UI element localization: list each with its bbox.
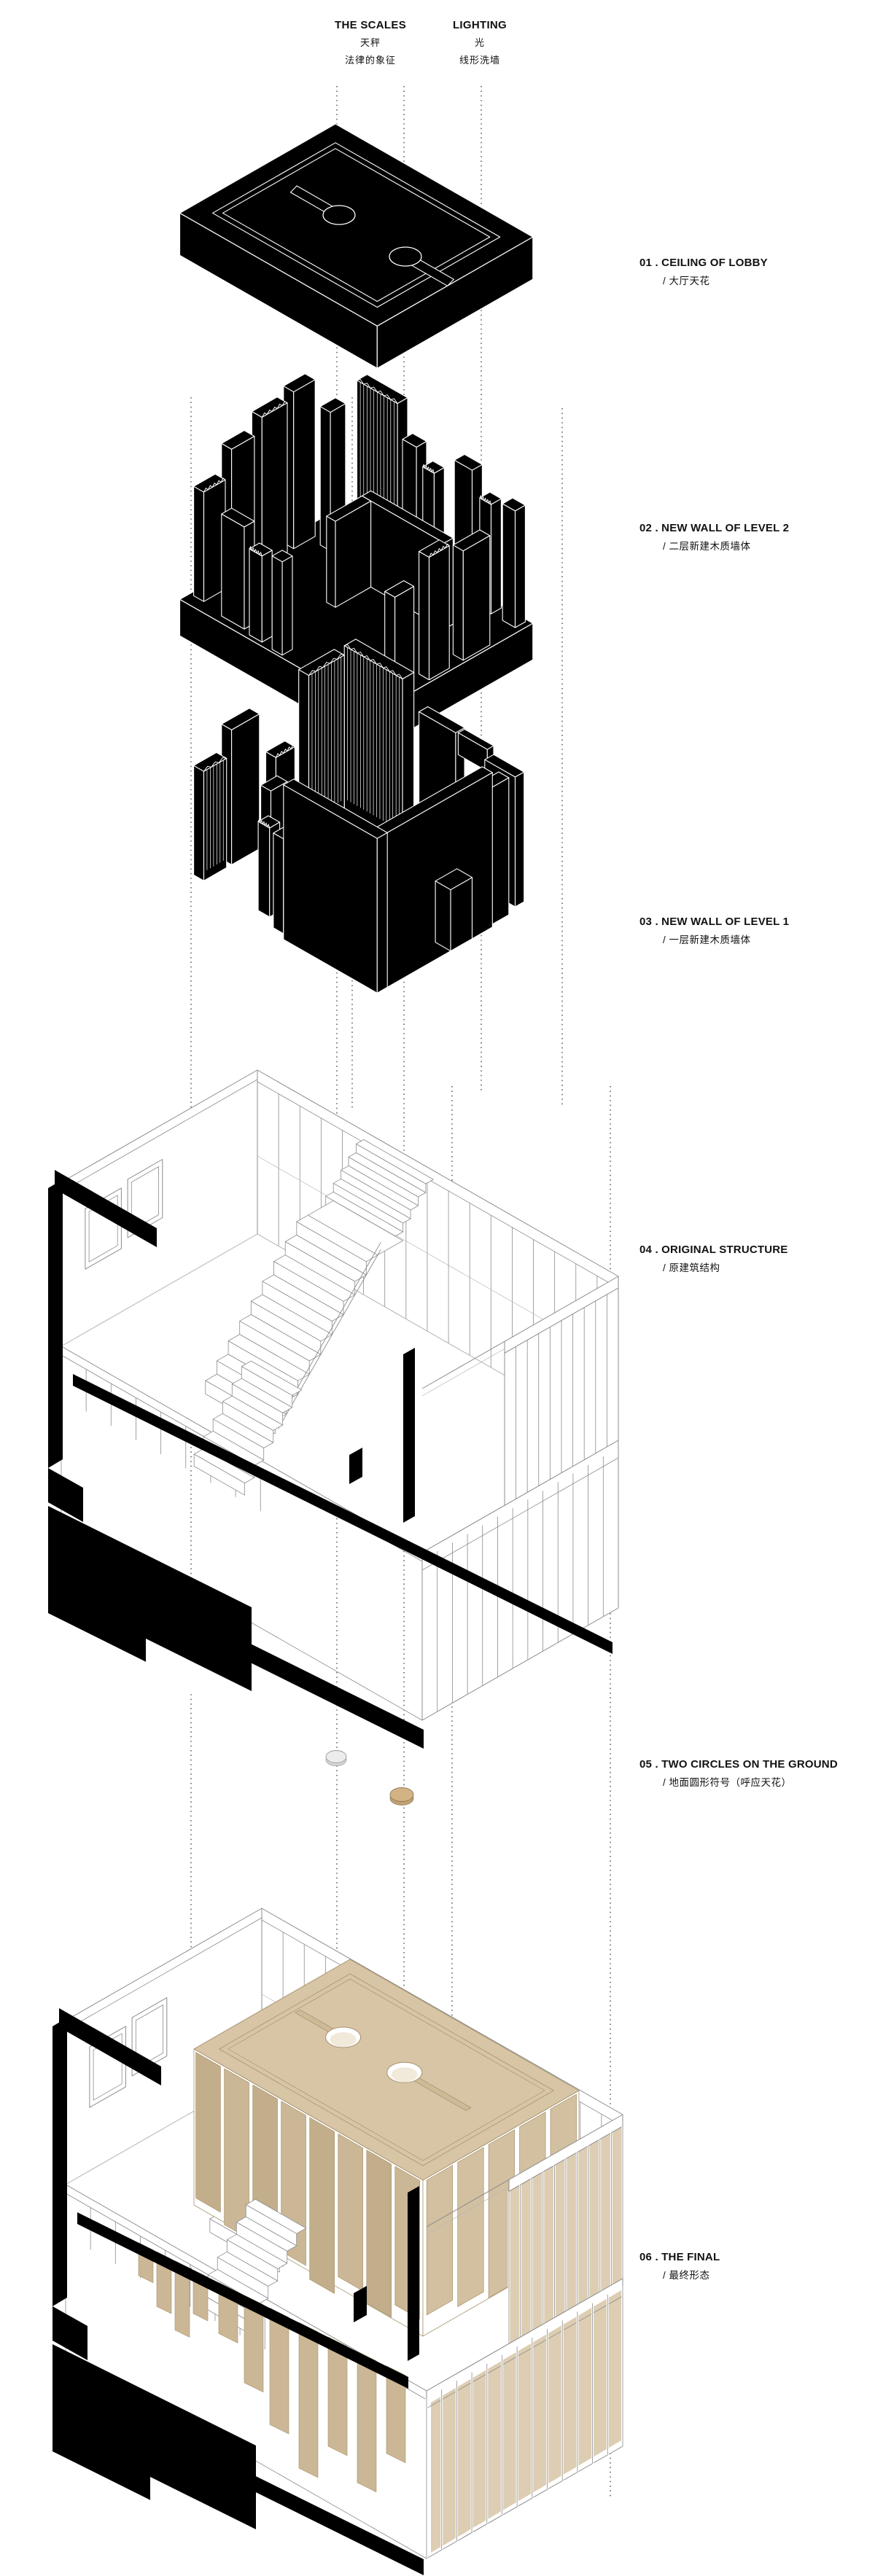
annotation-title: 03 . NEW WALL OF LEVEL 1 (639, 916, 789, 928)
annotation-06-the-final: 06 . THE FINAL / 最终形态 (639, 2251, 720, 2282)
scale-pan-left-icon (323, 206, 355, 225)
ceiling-of-lobby (180, 124, 533, 368)
cut-left-wall (52, 2018, 67, 2306)
annotation-subtitle: / 二层新建木质墙体 (639, 538, 789, 553)
scale-pan-right-icon (389, 247, 421, 266)
cut-left-wall (48, 1179, 63, 1468)
annotation-title: 06 . THE FINAL (639, 2251, 720, 2263)
annotation-subtitle: / 原建筑结构 (639, 1260, 788, 1274)
column-subtitle-2: 线形洗墙 (400, 52, 560, 66)
annotation-title: 04 . ORIGINAL STRUCTURE (639, 1244, 788, 1256)
annotation-05-two-circles-ground: 05 . TWO CIRCLES ON THE GROUND / 地面圆形符号（… (639, 1758, 838, 1789)
original-structure (48, 1070, 618, 1749)
annotation-subtitle: / 最终形态 (639, 2267, 720, 2282)
column-title: LIGHTING (400, 19, 560, 31)
annotation-subtitle: / 一层新建木质墙体 (639, 932, 789, 946)
annotation-01-ceiling-of-lobby: 01 . CEILING OF LOBBY / 大厅天花 (639, 257, 768, 287)
ground-circle-white (326, 1751, 346, 1763)
diagram-canvas (0, 0, 875, 2576)
annotation-title: 05 . TWO CIRCLES ON THE GROUND (639, 1758, 838, 1771)
annotation-subtitle: / 大厅天花 (639, 273, 768, 287)
two-circles-on-ground (326, 1751, 413, 1806)
annotation-04-original-structure: 04 . ORIGINAL STRUCTURE / 原建筑结构 (639, 1244, 788, 1274)
annotation-03-new-wall-level-1: 03 . NEW WALL OF LEVEL 1 / 一层新建木质墙体 (639, 916, 789, 946)
column-label-lighting: LIGHTING 光 线形洗墙 (400, 19, 560, 66)
annotation-title: 01 . CEILING OF LOBBY (639, 257, 768, 269)
ground-circle-tan (390, 1788, 413, 1802)
annotation-subtitle: / 地面圆形符号（呼应天花） (639, 1774, 838, 1789)
annotation-02-new-wall-level-2: 02 . NEW WALL OF LEVEL 2 / 二层新建木质墙体 (639, 522, 789, 553)
final-form (52, 1908, 623, 2575)
exploded-axon-diagram: THE SCALES 天秤 法律的象征 LIGHTING 光 线形洗墙 01 .… (0, 0, 875, 2576)
annotation-title: 02 . NEW WALL OF LEVEL 2 (639, 522, 789, 534)
column-subtitle-1: 光 (400, 35, 560, 49)
